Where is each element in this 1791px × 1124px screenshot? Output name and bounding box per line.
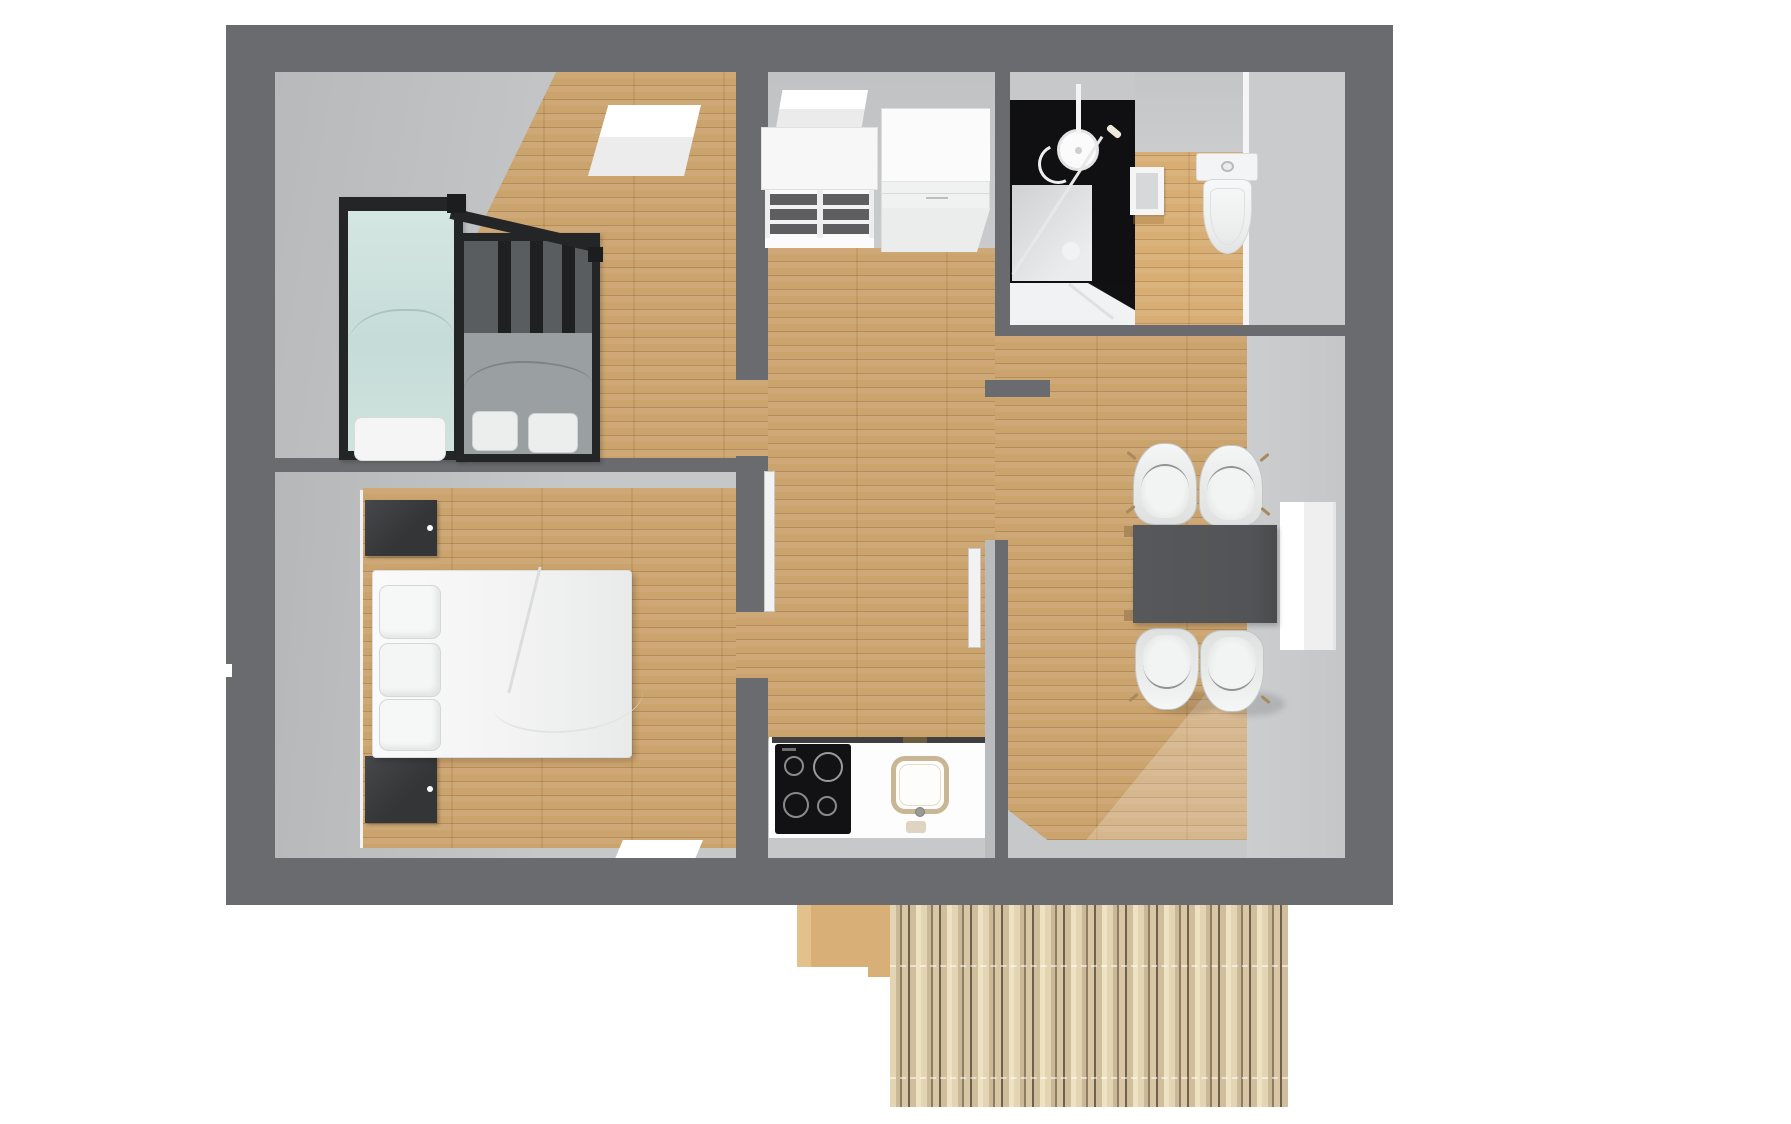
- single-bed-mint-fold: [348, 309, 454, 345]
- wall-bathroom-bottom: [995, 325, 1345, 336]
- shelf-divider-r: [869, 190, 874, 238]
- toilet-flush-button: [1221, 161, 1234, 172]
- left-wall-window-tick: [224, 664, 232, 677]
- door-opening-bedroom-twin: [736, 380, 768, 456]
- wall-bathroom-left: [995, 72, 1010, 335]
- wardrobe-lower-front: [882, 208, 991, 253]
- kitchen-bottom-wallface: [768, 836, 995, 858]
- sink-basin-line: [899, 764, 941, 806]
- toilet-bowl: [1203, 179, 1252, 254]
- cooktop-controls: [782, 748, 796, 751]
- bed-slat-3: [562, 241, 575, 333]
- kitchen-counter: [769, 737, 985, 838]
- wall-kitchen-dining: [995, 540, 1008, 858]
- shower-head-center: [1075, 147, 1082, 154]
- sink-soap-dish: [906, 821, 926, 833]
- cube-shelf: [761, 127, 878, 248]
- cube-shelf-base: [765, 238, 874, 248]
- floorplan-canvas: [0, 0, 1791, 1124]
- chair-top-left-seat: [1141, 464, 1189, 518]
- chair-top-right: [1199, 445, 1263, 527]
- deck-joint-line-2: [890, 1077, 1288, 1079]
- single-bed-mint: [339, 197, 463, 460]
- shower-riser-pipe: [1076, 84, 1081, 134]
- bathroom-toilet-wallface: [1135, 72, 1243, 152]
- dining-window: [1280, 502, 1336, 650]
- chair-bottom-left: [1135, 628, 1199, 710]
- nightstand-lower-knob: [427, 786, 433, 792]
- single-bed-gray-headrail: [464, 241, 592, 333]
- kitchen-dining-wallface: [985, 540, 995, 858]
- chair-bottom-right-seat: [1208, 637, 1256, 691]
- burner-bottom-left: [783, 792, 809, 818]
- storage-room-floor: [1249, 72, 1345, 325]
- wardrobe-handle: [926, 197, 948, 199]
- shelf-divider-l: [765, 190, 770, 238]
- wall-niche-shadow: [1133, 215, 1164, 224]
- bed-corner-post-1: [447, 194, 466, 213]
- chair-top-right-seat: [1207, 466, 1255, 520]
- burner-top-left: [784, 756, 804, 776]
- toilet-seat-line: [1210, 188, 1245, 245]
- hall-window: [776, 90, 868, 128]
- hall-floor: [768, 248, 995, 740]
- shower-drain: [1062, 242, 1080, 260]
- single-bed-gray-pillow-1: [472, 411, 518, 451]
- deck-boards: [890, 905, 1288, 1107]
- double-bed-pillow-3: [379, 699, 441, 751]
- outer-wall-bottom: [226, 858, 1393, 905]
- chair-bottom-right: [1200, 630, 1264, 712]
- toilet: [1196, 153, 1258, 254]
- nightstand-upper: [365, 500, 437, 556]
- shelf-divider-m: [817, 190, 823, 238]
- double-bed: [372, 570, 632, 758]
- wall-niche: [1130, 167, 1164, 215]
- chair-bottom-left-seat: [1143, 635, 1191, 689]
- bed-slat-2: [530, 241, 543, 333]
- chair-top-left: [1133, 443, 1197, 525]
- deck-joint-line-1: [890, 965, 1288, 967]
- bed-corner-post-2: [588, 247, 603, 262]
- wall-stub-hall-dining: [985, 380, 1050, 397]
- dining-table: [1133, 525, 1277, 623]
- wardrobe: [881, 108, 990, 252]
- bed-slat-1: [498, 241, 511, 333]
- shower-tray-front: [1010, 283, 1135, 325]
- double-bed-duvet-seam-1: [507, 567, 541, 694]
- cube-shelf-top: [761, 127, 878, 190]
- double-bed-duvet-seam-2: [493, 691, 643, 733]
- cooktop: [775, 744, 851, 834]
- single-bed-mint-duvet: [348, 211, 454, 451]
- double-bed-pillow-1: [379, 585, 441, 639]
- door-leaf-bedroom-double: [764, 471, 775, 612]
- burner-bottom-right: [817, 796, 837, 816]
- door-leaf-kitchen-dining: [968, 548, 981, 648]
- nightstand-lower: [365, 756, 437, 823]
- counter-back-edge: [772, 737, 985, 743]
- outer-wall-right: [1345, 25, 1393, 905]
- sink: [891, 756, 949, 814]
- single-bed-gray-fold: [464, 361, 592, 393]
- deck-step: [797, 905, 893, 967]
- nightstand-upper-knob: [427, 525, 433, 531]
- dining-bottom-wallface: [1008, 840, 1247, 858]
- cube-shelf-cubbies: [765, 190, 874, 238]
- counter-back-edge-wood: [903, 737, 927, 743]
- shower-enclosure: [1010, 100, 1135, 283]
- wardrobe-top-face: [882, 109, 991, 182]
- single-bed-gray-pillow-2: [528, 413, 578, 453]
- shower-tray: [1012, 185, 1092, 281]
- shower-mixer: [1106, 124, 1123, 140]
- double-bed-pillow-2: [379, 643, 441, 697]
- outer-wall-left: [226, 25, 275, 905]
- single-bed-mint-pillow: [354, 417, 446, 461]
- outer-wall-top: [226, 25, 1393, 72]
- door-opening-bedroom-double: [736, 612, 768, 678]
- wardrobe-seam: [882, 193, 991, 194]
- single-bed-gray-interior: [464, 241, 592, 454]
- sink-faucet: [915, 807, 925, 817]
- single-bed-gray: [456, 233, 600, 462]
- burner-top-right: [813, 752, 843, 782]
